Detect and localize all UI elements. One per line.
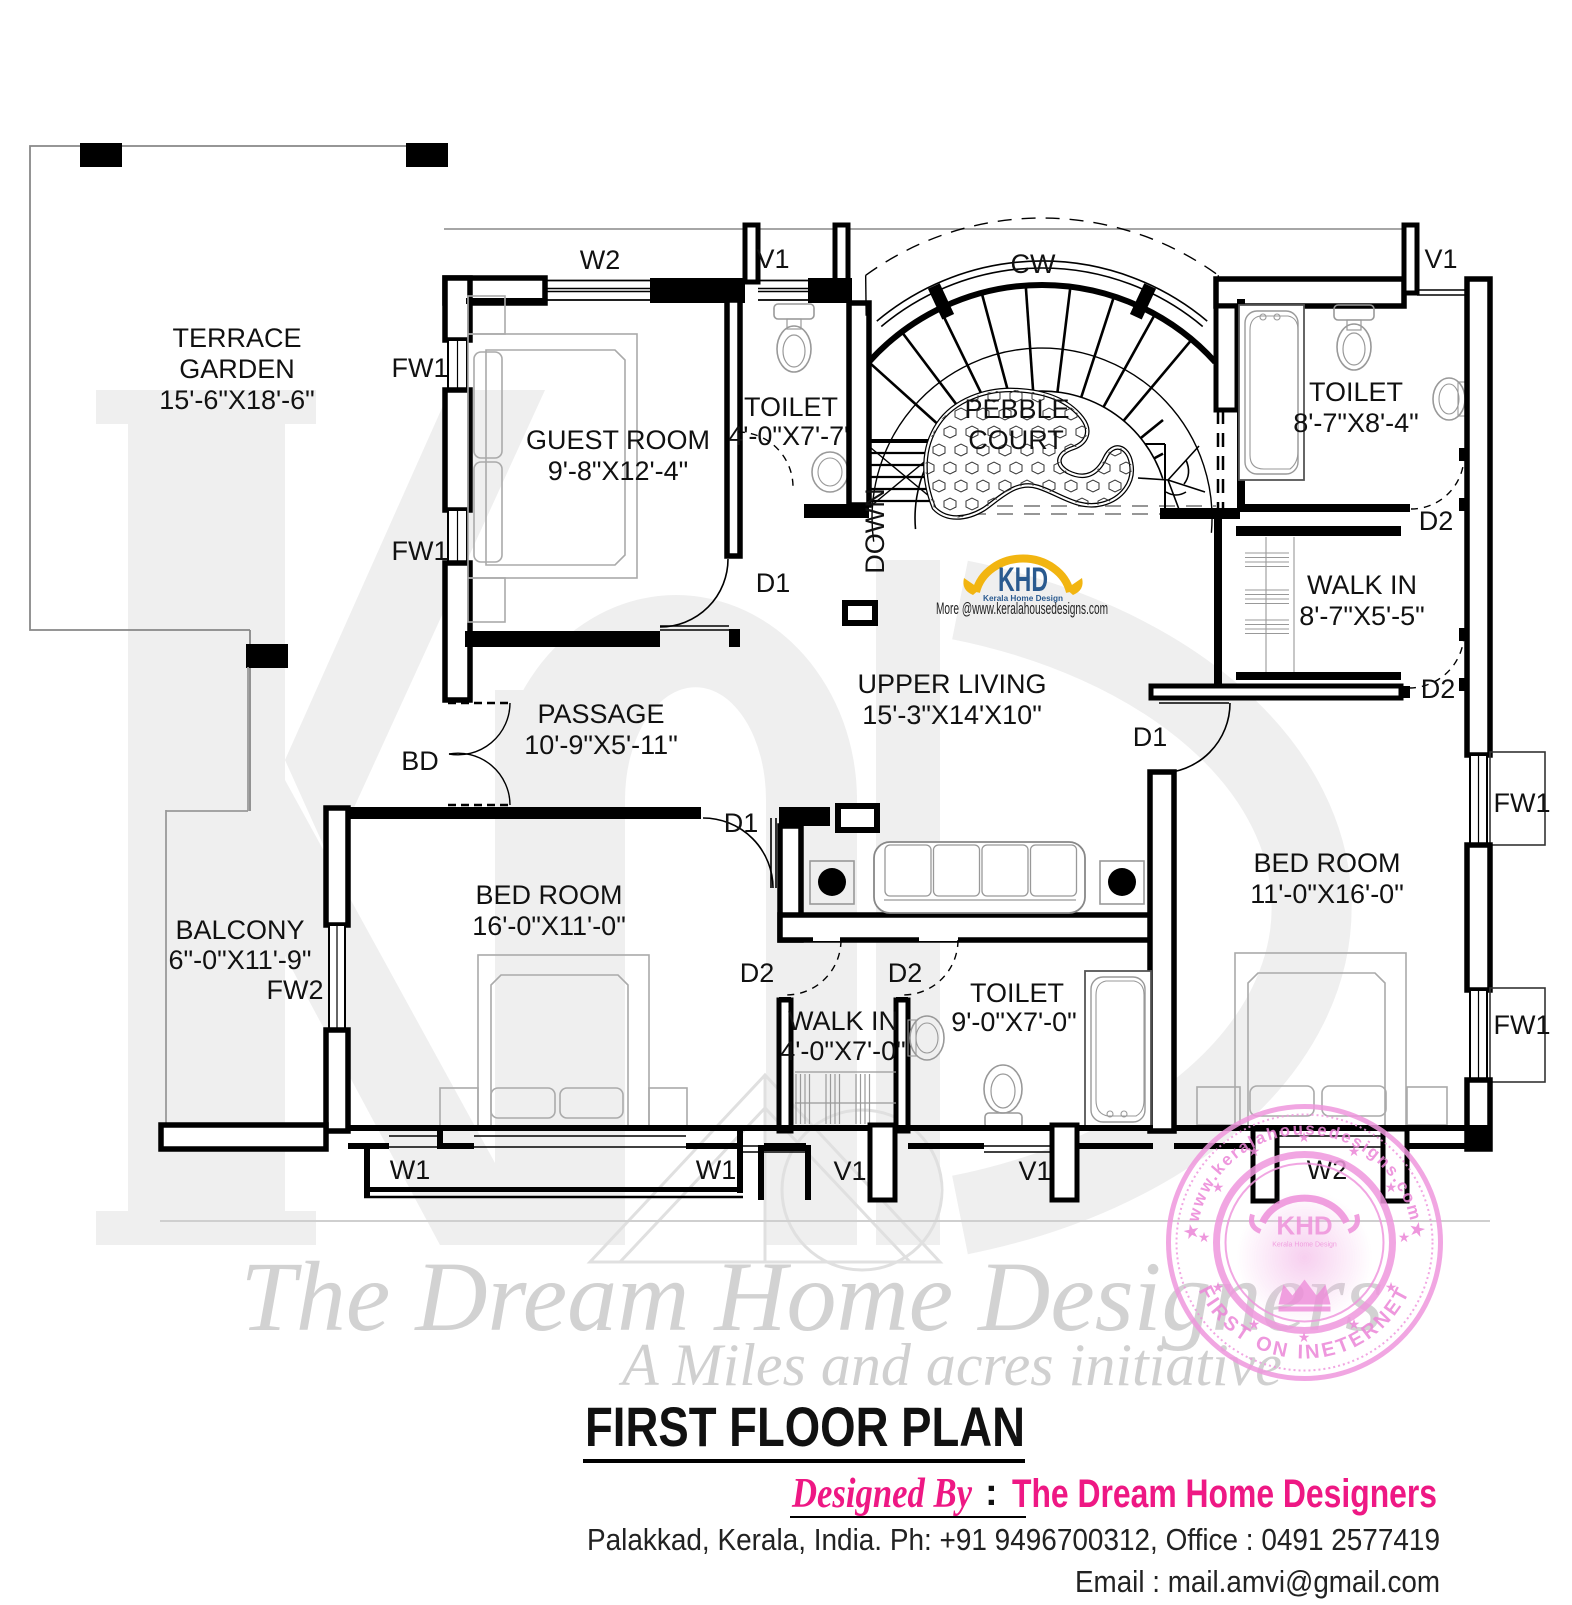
svg-text:V1: V1	[833, 1156, 866, 1186]
svg-text:★: ★	[1298, 1131, 1311, 1146]
svg-text:D1: D1	[756, 568, 791, 598]
svg-text:A Miles and acres initiative: A Miles and acres initiative	[618, 1332, 1282, 1398]
svg-text:GARDEN: GARDEN	[179, 354, 295, 384]
svg-text:DOWN: DOWN	[860, 488, 890, 573]
svg-text:15'-6"X18'-6": 15'-6"X18'-6"	[159, 385, 315, 415]
svg-text:15'-3"X14'X10": 15'-3"X14'X10"	[862, 700, 1042, 730]
svg-text:8'-7"X5'-5": 8'-7"X5'-5"	[1299, 601, 1425, 631]
svg-text:★: ★	[1198, 1231, 1211, 1246]
svg-text:The Dream Home Designers: The Dream Home Designers	[1012, 1472, 1437, 1516]
svg-text:V1: V1	[756, 244, 789, 274]
svg-text:11'-0"X16'-0": 11'-0"X16'-0"	[1250, 879, 1404, 909]
svg-text:BED ROOM: BED ROOM	[475, 880, 622, 910]
svg-text:★: ★	[1248, 1318, 1261, 1333]
svg-text:8'-7"X8'-4": 8'-7"X8'-4"	[1293, 408, 1419, 438]
svg-text:D2: D2	[1419, 506, 1454, 536]
svg-text:GUEST ROOM: GUEST ROOM	[526, 425, 710, 455]
svg-text:★: ★	[1298, 1331, 1311, 1346]
svg-text:FW1: FW1	[392, 353, 449, 383]
svg-text:D1: D1	[724, 808, 759, 838]
svg-text:★: ★	[1348, 1145, 1361, 1160]
svg-text:4'-0"X7'-0": 4'-0"X7'-0"	[780, 1036, 906, 1066]
svg-text:BD: BD	[401, 746, 439, 776]
svg-text:COURT: COURT	[968, 425, 1064, 455]
svg-text:W1: W1	[390, 1155, 431, 1185]
svg-text:D2: D2	[888, 958, 923, 988]
svg-text:4'-0"X7'-7": 4'-0"X7'-7"	[728, 421, 854, 451]
svg-text:6"-0"X11'-9": 6"-0"X11'-9"	[169, 945, 312, 975]
svg-text:9'-0"X7'-0": 9'-0"X7'-0"	[951, 1007, 1077, 1037]
svg-text:★: ★	[1398, 1231, 1411, 1246]
svg-text:★: ★	[1212, 1181, 1225, 1196]
svg-text:TOILET: TOILET	[970, 978, 1064, 1008]
svg-text:Designed By: Designed By	[791, 1471, 972, 1517]
svg-text:WALK IN: WALK IN	[1307, 570, 1417, 600]
svg-text:WALK IN: WALK IN	[788, 1006, 898, 1036]
svg-text:UPPER LIVING: UPPER LIVING	[857, 669, 1046, 699]
svg-text:TERRACE: TERRACE	[172, 323, 301, 353]
svg-text:D2: D2	[1421, 674, 1456, 704]
svg-text:16'-0"X11'-0": 16'-0"X11'-0"	[472, 911, 626, 941]
svg-text:PEBBLE: PEBBLE	[964, 394, 1069, 424]
svg-text:D1: D1	[1133, 722, 1168, 752]
svg-text:★: ★	[1348, 1318, 1361, 1333]
svg-text:TOILET: TOILET	[1309, 377, 1403, 407]
svg-text:FW1: FW1	[1494, 1010, 1551, 1040]
svg-text:FW1: FW1	[392, 536, 449, 566]
svg-text:Palakkad, Kerala, India. Ph:: Palakkad, Kerala, India. Ph: +91 9496700…	[587, 1522, 1440, 1557]
svg-text:CW: CW	[1011, 249, 1056, 279]
svg-text:FW2: FW2	[267, 975, 324, 1005]
svg-text:V1: V1	[1018, 1156, 1051, 1186]
svg-text:KHD: KHD	[1276, 1211, 1332, 1241]
svg-text:D2: D2	[740, 958, 775, 988]
svg-text:W1: W1	[696, 1155, 737, 1185]
svg-text:★: ★	[1212, 1281, 1225, 1296]
svg-text:★: ★	[1248, 1145, 1261, 1160]
svg-text:TOILET: TOILET	[744, 392, 838, 422]
svg-text::: :	[985, 1472, 998, 1514]
svg-text:Email : mail.amvi@gmail.com: Email : mail.amvi@gmail.com	[1075, 1564, 1440, 1599]
svg-text:★: ★	[1385, 1281, 1398, 1296]
svg-text:9'-8"X12'-4": 9'-8"X12'-4"	[548, 456, 689, 486]
svg-text:BALCONY: BALCONY	[175, 915, 304, 945]
svg-text:10'-9"X5'-11": 10'-9"X5'-11"	[524, 730, 678, 760]
svg-text:Kerala Home Design: Kerala Home Design	[1272, 1242, 1337, 1249]
svg-text:FIRST FLOOR PLAN: FIRST FLOOR PLAN	[585, 1395, 1025, 1458]
svg-text:★: ★	[1385, 1181, 1398, 1196]
svg-text:PASSAGE: PASSAGE	[537, 699, 664, 729]
svg-text:More @www.keralahousedesigns.c: More @www.keralahousedesigns.com	[936, 599, 1108, 618]
svg-text:FW1: FW1	[1494, 788, 1551, 818]
svg-text:V1: V1	[1424, 244, 1457, 274]
svg-text:W2: W2	[580, 245, 621, 275]
svg-text:BED ROOM: BED ROOM	[1253, 848, 1400, 878]
